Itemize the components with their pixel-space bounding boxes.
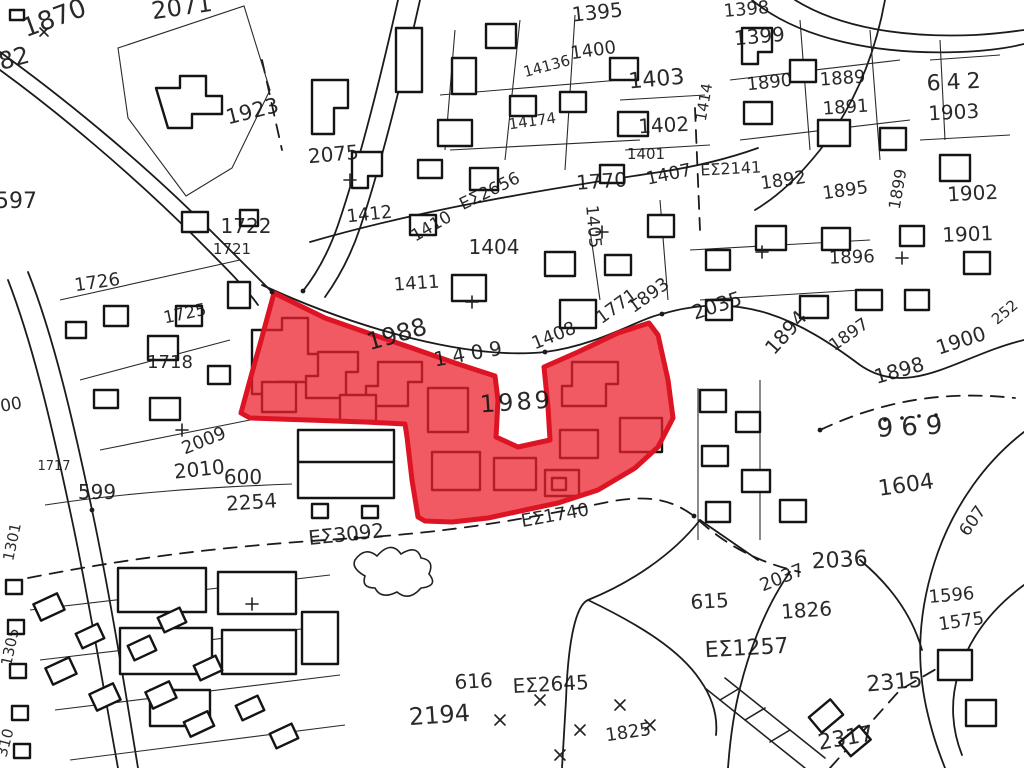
parcel-label: 2315 (865, 668, 923, 698)
parcel-label: 1718 (147, 352, 193, 373)
parcel-label: ΕΣ2141 (700, 157, 762, 179)
parcel-label: 1399 (733, 22, 786, 50)
parcel-label: 1989 (479, 386, 554, 419)
parcel-label: 1403 (627, 65, 685, 95)
parcel-label: 1901 (942, 221, 994, 247)
parcel-label: 642 (926, 68, 987, 96)
cadastral-map-page: 1870822071192359717221721172617251718171… (0, 0, 1024, 768)
parcel-label: 615 (690, 588, 729, 614)
parcel-label: 1826 (780, 596, 832, 623)
parcel-label: 969 (876, 410, 951, 444)
parcel-label: 1891 (822, 95, 869, 119)
parcel-label: 2194 (408, 699, 471, 731)
parcel-label: 1896 (829, 246, 876, 269)
parcel-label: 1401 (627, 145, 665, 163)
parcel-label: 2254 (225, 488, 277, 515)
parcel-label: 599 (78, 480, 116, 504)
parcel-label: 1717 (37, 459, 70, 474)
parcel-label: 1722 (221, 214, 272, 238)
parcel-label: 1596 (928, 583, 975, 608)
parcel-label: 600 (224, 465, 262, 489)
parcel-label: 00 (0, 393, 24, 416)
parcel-label: ΕΣ2645 (512, 670, 589, 698)
parcel-label: 1721 (213, 240, 251, 258)
parcel-label: 1902 (947, 180, 999, 207)
parcel-label: 1411 (393, 271, 440, 295)
parcel-label: 1889 (819, 66, 866, 90)
parcel-label: 2075 (307, 140, 360, 168)
parcel-label: 1405 (581, 204, 605, 249)
parcel-label: 1903 (928, 99, 980, 126)
parcel-label: 2036 (811, 547, 868, 575)
parcel-label: 1402 (638, 112, 690, 139)
parcel-label: 1770 (575, 167, 627, 194)
parcel-label: 616 (454, 668, 493, 694)
parcel-label: 1404 (469, 235, 520, 259)
parcel-label: 597 (0, 189, 37, 214)
cadastral-map: 1870822071192359717221721172617251718171… (0, 0, 1024, 768)
parcel-label: ΕΣ1257 (704, 634, 789, 663)
